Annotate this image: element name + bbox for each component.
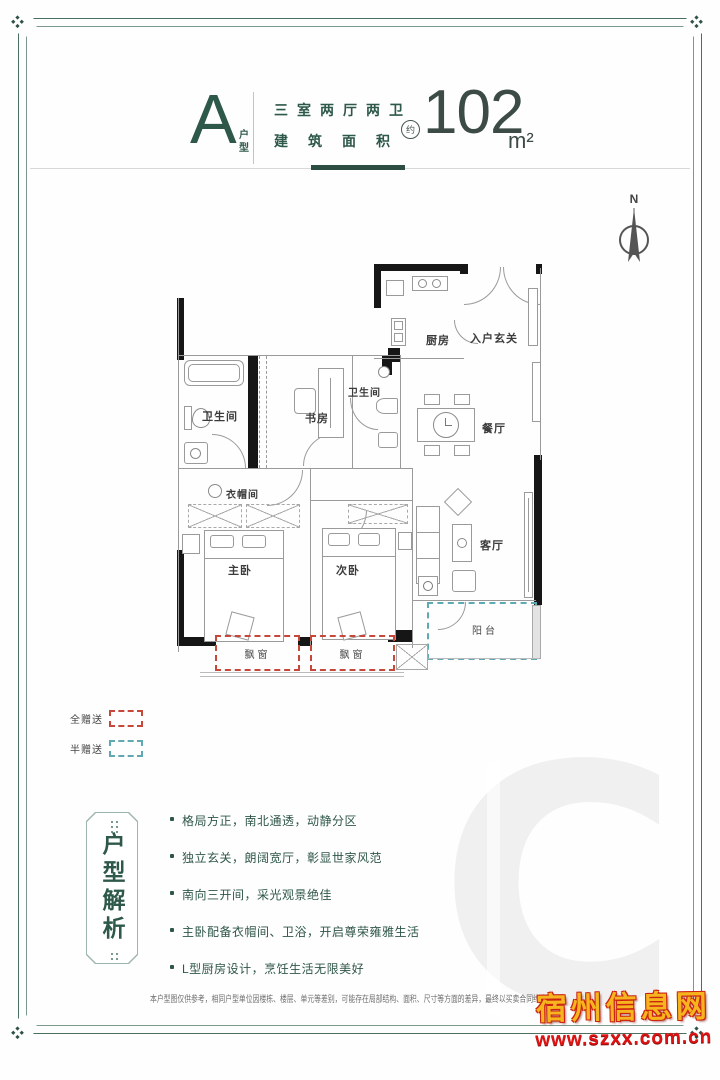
bullet-icon: [170, 854, 174, 858]
legend-row-full-gift: 全赠送: [70, 710, 143, 727]
wall-segment: [374, 264, 381, 308]
corner-ornament: [15, 15, 19, 19]
background-logo-stripe: [487, 762, 500, 1014]
room-label-dining: 餐厅: [482, 420, 506, 436]
header-rule-accent: [311, 165, 405, 170]
bullet-icon: [170, 965, 174, 969]
wall-line: [178, 298, 179, 652]
legend: 全赠送 半赠送: [70, 710, 143, 770]
area-label-text: 建筑面积: [274, 131, 410, 151]
bay-window-label: 飘窗: [340, 646, 366, 661]
nightstand: [182, 534, 200, 554]
wall-segment: [374, 264, 464, 271]
wall-line: [178, 468, 412, 469]
bay-window-gift-outline: 飘窗: [215, 635, 300, 671]
approx-circle-badge: 约: [401, 120, 420, 139]
room-spec-text: 三室两厅两卫: [274, 100, 412, 120]
dining-chair: [454, 394, 470, 405]
bullet-text: 南向三开间，采光观景绝佳: [182, 886, 332, 903]
unit-type-label: 户型: [239, 130, 250, 155]
stove-burner: [418, 279, 427, 288]
wardrobe: [188, 504, 242, 528]
wall-line: [310, 468, 311, 648]
entry-door-arc: [464, 267, 501, 305]
washing-machine: [396, 644, 428, 670]
room-label-cloakroom: 衣帽间: [226, 486, 259, 501]
cloakroom-marker-icon: [208, 484, 222, 498]
list-item: 南向三开间，采光观景绝佳: [170, 886, 470, 903]
legend-swatch-teal: [109, 740, 143, 757]
room-label-bathroom: 卫生间: [348, 384, 381, 399]
corner-ornament: [694, 15, 698, 19]
dots-ornament: [111, 821, 113, 823]
bullet-icon: [170, 928, 174, 932]
bullet-text: L型厨房设计，烹饪生活无限美好: [182, 960, 364, 977]
kitchen-sink-bowl: [394, 321, 403, 330]
wall-line: [400, 355, 401, 468]
analysis-bullet-list: 格局方正，南北通透，动静分区 独立玄关，朗阔宽厅，彰显世家风范 南向三开间，采光…: [170, 812, 470, 997]
room-label-kitchen: 厨房: [426, 332, 450, 348]
analysis-title-box-inner: 户型解析: [87, 813, 137, 963]
wall-line: [412, 468, 413, 648]
window-channel: [532, 362, 541, 422]
stool: [452, 570, 476, 592]
master-door-arc: [267, 470, 303, 506]
sofa-cushion-line: [416, 558, 440, 559]
room-label-master-bedroom: 主卧: [228, 562, 252, 578]
mirror: [378, 366, 390, 378]
legend-label-full-gift: 全赠送: [70, 711, 103, 726]
site-watermark: 宿州信息网 www.szxx.com.cn: [534, 980, 712, 1051]
compass-needle-icon: [612, 206, 656, 272]
sofa-cushion-line: [416, 532, 440, 533]
wall-line: [178, 355, 400, 356]
dining-chair: [424, 445, 440, 456]
list-item: L型厨房设计，烹饪生活无限美好: [170, 960, 470, 977]
bullet-icon: [170, 891, 174, 895]
window-sill-line: [200, 672, 404, 673]
nightstand: [398, 532, 412, 550]
bathroom-door-arc: [350, 398, 378, 430]
disclaimer-text: 本户型图仅供参考，相同户型单位因楼栋、楼层、单元等差别，可能存在局部结构、面积、…: [150, 992, 567, 1005]
sofa: [416, 506, 440, 584]
area-unit: m²: [508, 128, 534, 154]
pillow: [328, 533, 350, 546]
window-sill-line: [200, 676, 404, 677]
dots-ornament: [111, 953, 113, 955]
window-glass-line: [528, 498, 529, 592]
kitchen-cabinet: [386, 280, 404, 296]
bathroom-door-arc: [212, 434, 246, 468]
bay-window-label: 飘窗: [245, 646, 271, 661]
balcony-side-rail: [532, 605, 541, 659]
wall-line: [412, 600, 536, 601]
room-label-balcony: 阳台: [472, 622, 498, 637]
legend-swatch-red: [109, 710, 143, 727]
room-label-entrance: 入户玄关: [470, 330, 518, 346]
wash-basin-bowl: [190, 448, 201, 459]
list-item: 格局方正，南北通透，动静分区: [170, 812, 470, 829]
list-item: 主卧配备衣帽间、卫浴，开启尊荣雍雅生活: [170, 923, 470, 940]
rug: [444, 488, 472, 516]
wardrobe: [348, 504, 408, 524]
wall-line: [374, 358, 464, 359]
pillow: [242, 535, 266, 548]
wall-segment: [534, 455, 542, 605]
plant-icon: [423, 581, 433, 591]
toilet-bowl: [376, 398, 398, 414]
bullet-icon: [170, 817, 174, 821]
toilet-tank: [184, 406, 192, 430]
room-label-second-bedroom: 次卧: [336, 562, 360, 578]
kitchen-sink-bowl: [394, 333, 403, 342]
wall-segment: [248, 355, 258, 468]
header-divider: [253, 92, 254, 164]
bay-window-gift-outline: 飘窗: [310, 635, 395, 671]
duct-channel: [259, 356, 267, 468]
room-label-study: 书房: [305, 410, 329, 426]
bathtub-inner: [188, 364, 240, 382]
wardrobe: [246, 504, 300, 528]
unit-type-letter: A: [190, 84, 237, 154]
coffee-table-decor: [457, 538, 467, 548]
pillow: [358, 533, 380, 546]
analysis-title-box: 户型解析: [86, 812, 138, 964]
desk-line: [330, 378, 331, 428]
corner-ornament: [15, 1026, 19, 1030]
compass-north-label: N: [612, 192, 656, 206]
bed-sheet-line: [204, 558, 284, 559]
bullet-text: 格局方正，南北通透，动静分区: [182, 812, 357, 829]
room-label-living-room: 客厅: [480, 537, 504, 553]
bed-sheet-line: [322, 556, 396, 557]
clock-hand: [445, 425, 452, 426]
site-watermark-url: www.szxx.com.cn: [535, 1026, 712, 1051]
stove-burner: [432, 279, 441, 288]
bullet-text: 独立玄关，朗阔宽厅，彰显世家风范: [182, 849, 382, 866]
bullet-text: 主卧配备衣帽间、卫浴，开启尊荣雍雅生活: [182, 923, 420, 940]
dining-chair: [424, 394, 440, 405]
compass: N: [612, 192, 656, 277]
desk: [318, 368, 344, 438]
list-item: 独立玄关，朗阔宽厅，彰显世家风范: [170, 849, 470, 866]
legend-label-half-gift: 半赠送: [70, 741, 103, 756]
wash-basin: [378, 432, 398, 448]
room-label-bathroom: 卫生间: [202, 408, 238, 424]
balcony-rail-line: [427, 658, 539, 659]
dining-chair: [454, 445, 470, 456]
floor-plan: 飘窗 飘窗 厨房 入户玄关 卫生间 卫生间 书房 餐厅 衣帽间 主卧 次卧 客厅…: [172, 262, 544, 686]
wall-line: [310, 500, 412, 501]
site-watermark-name: 宿州信息网: [534, 980, 712, 1028]
pillow: [210, 535, 234, 548]
legend-row-half-gift: 半赠送: [70, 740, 143, 757]
shoe-cabinet: [528, 288, 538, 346]
analysis-title: 户型解析: [95, 832, 129, 944]
